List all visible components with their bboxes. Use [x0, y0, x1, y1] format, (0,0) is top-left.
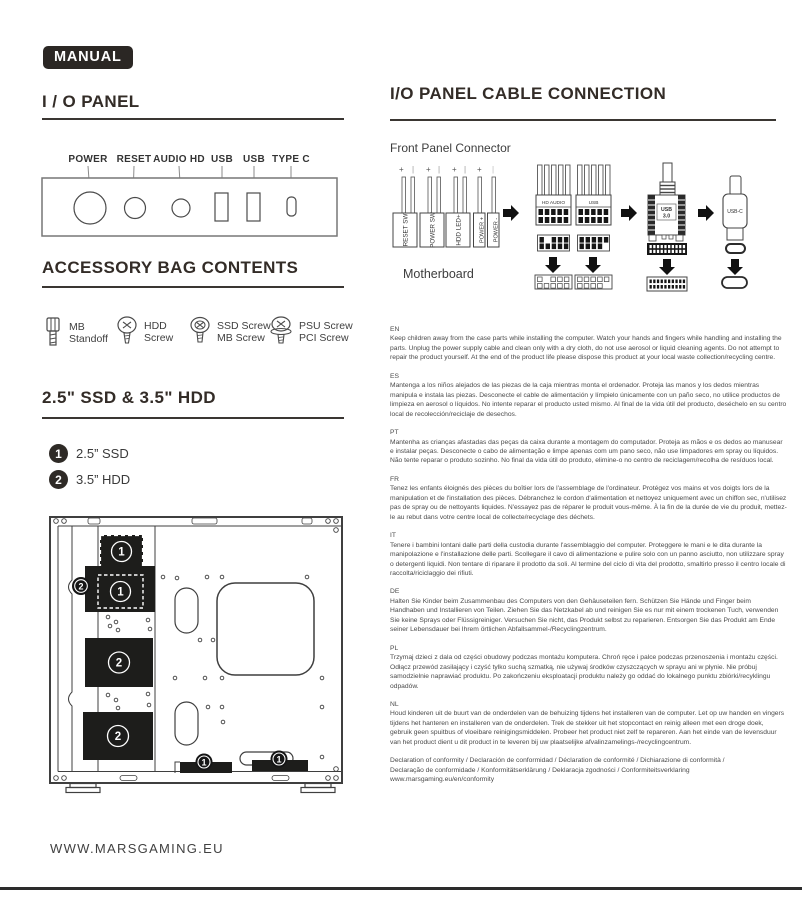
svg-text:USB-C: USB-C — [727, 209, 743, 215]
svg-text:1: 1 — [118, 547, 125, 559]
safety-paragraph: DE Halten Sie Kinder beim Zusammenbau de… — [390, 587, 787, 634]
ssd-screw-icon — [188, 316, 212, 348]
storage-divider — [42, 417, 344, 419]
arrow-right-icon — [503, 205, 519, 221]
arrow-right-icon — [698, 205, 714, 221]
ssd-position-bottom-2: 1 — [252, 751, 308, 772]
accessory-item-hdd-screw: HDDScrew — [115, 316, 173, 348]
cable-grommet-2 — [175, 702, 198, 745]
accessory-label-1b: Standoff — [69, 333, 108, 346]
front-panel-connector-label: Front Panel Connector — [390, 141, 511, 155]
io-label-typec: TYPE C — [272, 154, 310, 165]
accessory-label-1a: MB — [69, 321, 108, 334]
page-bottom-rule — [0, 887, 802, 890]
accessory-title: ACCESSORY BAG CONTENTS — [42, 258, 298, 278]
paragraph-text: Halten Sie Kinder beim Zusammenbau des C… — [390, 597, 787, 635]
manual-badge: MANUAL — [43, 46, 133, 69]
accessory-item-ssd-screw: SSD ScrewMB Screw — [188, 316, 271, 348]
language-label: IT — [390, 531, 787, 540]
svg-text:|: | — [412, 165, 414, 174]
usb3-connector: USB 3.0 — [647, 163, 687, 291]
language-label: EN — [390, 325, 787, 334]
accessory-item-psu-screw: PSU ScrewPCI Screw — [268, 316, 353, 348]
cable-grommet-1 — [175, 588, 198, 633]
io-panel-diagram: POWER RESET AUDIO HD USB USB TYPE C — [40, 144, 340, 244]
svg-text:USB: USB — [661, 207, 672, 213]
accessory-label-4a: PSU Screw — [299, 320, 353, 333]
usbc-port-shape — [726, 244, 745, 253]
psu-screw-icon — [268, 316, 294, 348]
svg-text:POWER -: POWER - — [494, 218, 500, 243]
paragraph-text: Trzymaj dzieci z dala od części obudowy … — [390, 653, 787, 691]
cpu-cutout — [217, 583, 314, 675]
arrow-right-icon — [621, 205, 637, 221]
arrow-down-icon — [545, 257, 561, 273]
svg-text:2: 2 — [78, 581, 83, 591]
svg-text:1: 1 — [276, 754, 281, 764]
svg-text:2: 2 — [116, 658, 122, 670]
accessory-label-3b: MB Screw — [217, 332, 271, 345]
svg-text:HDD LED+: HDD LED+ — [455, 214, 462, 246]
accessory-label-2a: HDD — [144, 320, 173, 333]
svg-text:POWER +: POWER + — [480, 217, 486, 243]
usbc-mb-port-shape — [722, 277, 747, 288]
hdd-position-middle: 2 — [85, 638, 153, 687]
website-text: WWW.MARSGAMING.EU — [50, 841, 224, 856]
io-label-usb1: USB — [211, 154, 233, 165]
connector-wires — [402, 177, 496, 213]
svg-text:USB: USB — [589, 200, 599, 206]
svg-text:+: + — [452, 165, 457, 174]
declaration-line-1: Declaration of conformity / Declaración … — [390, 756, 787, 765]
usbc-connector: USB-C — [722, 176, 747, 288]
language-label: PL — [390, 644, 787, 653]
case-diagram: 1 1 2 2 2 1 — [48, 514, 344, 796]
arrow-down-icon — [659, 259, 675, 275]
io-label-reset: RESET — [117, 154, 152, 165]
io-panel-divider — [42, 118, 344, 120]
paragraph-text: Tenere i bambini lontani dalle parti del… — [390, 541, 787, 579]
language-label: ES — [390, 372, 787, 381]
svg-text:|: | — [492, 165, 494, 174]
cable-title: I/O PANEL CABLE CONNECTION — [390, 84, 666, 104]
hdd-screw-icon — [115, 316, 139, 348]
svg-text:POWER SW: POWER SW — [429, 212, 436, 248]
svg-text:|: | — [438, 165, 440, 174]
svg-text:3.0: 3.0 — [663, 214, 670, 220]
svg-text:RESET SW: RESET SW — [402, 214, 409, 247]
paragraph-text: Houd kinderen uit de buurt van de onderd… — [390, 709, 787, 747]
language-label: PT — [390, 428, 787, 437]
language-label: NL — [390, 700, 787, 709]
accessory-item-standoff: MBStandoff — [42, 316, 108, 350]
safety-paragraph: NL Houd kinderen uit de buurt van de ond… — [390, 700, 787, 747]
io-label-audio: AUDIO HD — [153, 154, 205, 165]
safety-paragraph: PT Mantenha as crianças afastadas das pe… — [390, 428, 787, 466]
paragraph-text: Mantenga a los niños alejados de las pie… — [390, 381, 787, 419]
paragraph-text: Tenez les enfants éloignés des pièces du… — [390, 484, 787, 522]
svg-text:+: + — [477, 165, 482, 174]
usb-header-block: USB — [575, 165, 612, 289]
cable-divider — [390, 119, 776, 121]
case-feet — [66, 784, 335, 793]
hdd-position-top: 1 2 — [72, 566, 155, 612]
storage-title: 2.5" SSD & 3.5" HDD — [42, 388, 216, 408]
mb-standoff-icon — [42, 316, 64, 350]
ssd-position-bottom-1: 1 — [180, 754, 232, 774]
hdd-position-bottom: 2 — [83, 712, 153, 760]
declaration-text: Declaration of conformity / Declaración … — [390, 756, 787, 784]
safety-paragraph: FR Tenez les enfants éloignés des pièces… — [390, 475, 787, 522]
io-label-power: POWER — [68, 154, 108, 165]
hd-audio-block: HD AUDIO — [535, 165, 572, 289]
safety-paragraph: EN Keep children away from the case part… — [390, 325, 787, 363]
legend-label-2: 3.5” HDD — [76, 472, 130, 487]
legend-badge-1: 1 — [49, 444, 68, 463]
legend-hdd: 2 3.5” HDD — [49, 470, 130, 489]
io-panel-title: I / O PANEL — [42, 92, 140, 112]
accessory-label-4b: PCI Screw — [299, 332, 353, 345]
motherboard-label: Motherboard — [403, 267, 474, 281]
accessory-label-3a: SSD Screw — [217, 320, 271, 333]
svg-text:2: 2 — [115, 731, 121, 743]
legend-ssd: 1 2.5” SSD — [49, 444, 129, 463]
legend-label-1: 2.5” SSD — [76, 446, 129, 461]
safety-text-block: EN Keep children away from the case part… — [390, 325, 787, 794]
safety-paragraph: ES Mantenga a los niños alejados de las … — [390, 372, 787, 419]
left-bracket — [69, 526, 73, 772]
paragraph-text: Keep children away from the case parts w… — [390, 334, 787, 362]
language-label: DE — [390, 587, 787, 596]
svg-text:1: 1 — [117, 587, 124, 599]
legend-badge-2: 2 — [49, 470, 68, 489]
io-label-usb2: USB — [243, 154, 265, 165]
arrow-down-icon — [585, 257, 601, 273]
safety-paragraph: PL Trzymaj dzieci z dala od części obudo… — [390, 644, 787, 691]
arrow-down-icon — [727, 259, 743, 275]
declaration-line-2: Declaração de conformidade / Konformität… — [390, 766, 787, 775]
cable-connection-diagram: +| +| +| +| RESET SW POWER SW HDD LED+ P… — [388, 161, 782, 305]
svg-text:HD AUDIO: HD AUDIO — [542, 200, 565, 206]
accessory-label-2b: Screw — [144, 332, 173, 345]
paragraph-text: Mantenha as crianças afastadas das peças… — [390, 438, 787, 466]
safety-paragraph: IT Tenere i bambini lontani dalle parti … — [390, 531, 787, 578]
language-label: FR — [390, 475, 787, 484]
polarity-marks: +| +| +| +| — [399, 165, 494, 174]
svg-text:+: + — [399, 165, 404, 174]
declaration-line-3: www.marsgaming.eu/en/conformity — [390, 775, 787, 784]
manual-page: MANUAL I / O PANEL POWER RESET AUDIO HD … — [0, 0, 802, 898]
ssd-position-top: 1 — [100, 535, 143, 568]
svg-text:|: | — [464, 165, 466, 174]
accessory-divider — [42, 286, 344, 288]
svg-text:1: 1 — [201, 757, 206, 767]
svg-text:+: + — [426, 165, 431, 174]
